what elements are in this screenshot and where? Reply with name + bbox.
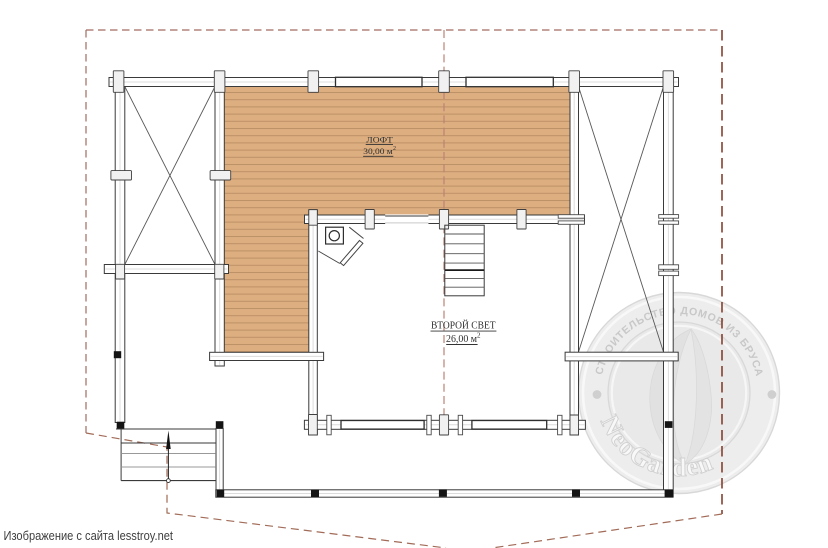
svg-text:30,00 м: 30,00 м — [363, 146, 393, 156]
svg-text:2: 2 — [393, 146, 396, 152]
svg-text:ВТОРОЙ СВЕТ: ВТОРОЙ СВЕТ — [431, 319, 496, 331]
svg-text:Изображение с сайта lesstroy.n: Изображение с сайта lesstroy.net — [4, 528, 174, 543]
svg-text:2: 2 — [477, 332, 481, 340]
svg-text:ЛОФТ: ЛОФТ — [366, 135, 393, 144]
svg-text:26,00 м: 26,00 м — [446, 334, 478, 345]
